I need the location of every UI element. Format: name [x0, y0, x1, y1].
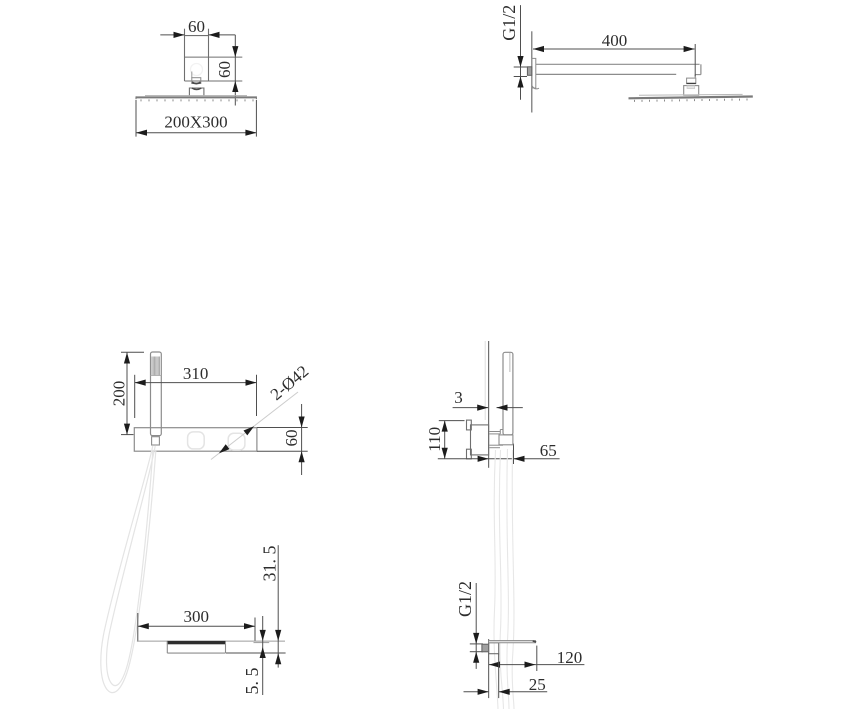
svg-text:31. 5: 31. 5 — [260, 546, 280, 582]
svg-text:3: 3 — [454, 388, 463, 407]
svg-text:60: 60 — [188, 17, 205, 36]
svg-text:60: 60 — [282, 430, 301, 447]
svg-text:G1/2: G1/2 — [499, 5, 519, 41]
svg-text:65: 65 — [540, 441, 557, 460]
svg-text:5. 5: 5. 5 — [242, 668, 262, 695]
svg-text:G1/2: G1/2 — [455, 581, 475, 617]
svg-text:60: 60 — [215, 61, 234, 78]
svg-text:400: 400 — [602, 31, 628, 50]
svg-text:200X300: 200X300 — [164, 113, 227, 132]
svg-text:300: 300 — [183, 607, 209, 626]
svg-text:200: 200 — [110, 381, 129, 407]
svg-text:25: 25 — [529, 675, 546, 694]
svg-text:110: 110 — [425, 427, 444, 452]
svg-text:120: 120 — [557, 648, 583, 667]
svg-text:310: 310 — [183, 364, 209, 383]
